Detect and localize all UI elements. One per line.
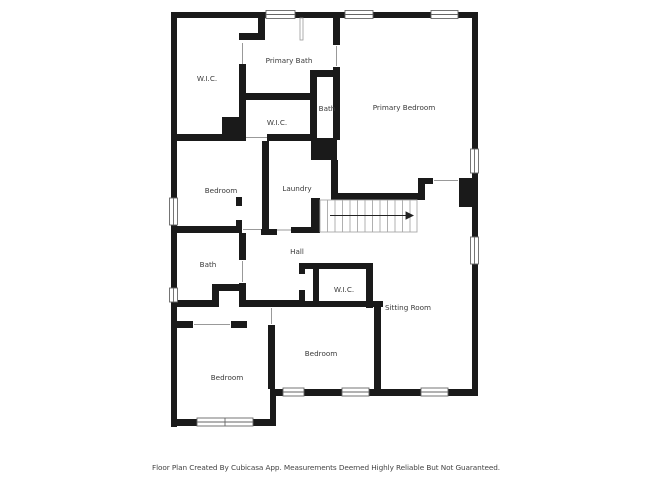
window-marker bbox=[471, 237, 479, 264]
wall-block bbox=[311, 198, 320, 233]
wall-block bbox=[222, 117, 243, 140]
wall-block bbox=[459, 178, 478, 207]
window-marker bbox=[421, 388, 448, 396]
window-marker bbox=[342, 388, 369, 396]
footer-disclaimer: Floor Plan Created By Cubicasa App. Meas… bbox=[152, 463, 500, 472]
window-marker bbox=[431, 11, 458, 19]
outer-wall-step bbox=[270, 389, 276, 423]
room-label-primary-bath: Primary Bath bbox=[266, 56, 313, 65]
room-label-bath-top: Bath bbox=[319, 104, 336, 113]
room-label-primary-bedroom: Primary Bedroom bbox=[373, 103, 436, 112]
window-marker bbox=[170, 198, 178, 225]
floor-plan-canvas: W.I.C. Primary Bath Bath W.I.C. Primary … bbox=[0, 0, 650, 488]
window-marker bbox=[170, 288, 178, 302]
room-label-laundry: Laundry bbox=[282, 184, 312, 193]
door-lines bbox=[194, 18, 458, 325]
shower-glass-panel bbox=[300, 18, 303, 40]
window-marker bbox=[266, 11, 295, 19]
staircase bbox=[320, 200, 417, 232]
window-marker bbox=[471, 149, 479, 173]
room-label-sitting-room: Sitting Room bbox=[385, 303, 431, 312]
window-marker bbox=[197, 418, 253, 426]
window-marker bbox=[283, 388, 304, 396]
floor-plan-page: W.I.C. Primary Bath Bath W.I.C. Primary … bbox=[0, 0, 650, 488]
room-label-bedroom-bottom-left: Bedroom bbox=[211, 373, 244, 382]
room-label-wic-top-left: W.I.C. bbox=[197, 74, 217, 83]
wall-block bbox=[311, 138, 337, 160]
room-label-wic-bottom: W.I.C. bbox=[334, 285, 354, 294]
room-label-hall: Hall bbox=[290, 247, 304, 256]
room-label-wic-mid: W.I.C. bbox=[267, 118, 287, 127]
room-label-bath-left: Bath bbox=[200, 260, 217, 269]
window-marker bbox=[345, 11, 373, 19]
room-label-bedroom-bottom-mid: Bedroom bbox=[305, 349, 338, 358]
room-label-bedroom-mid: Bedroom bbox=[205, 186, 238, 195]
